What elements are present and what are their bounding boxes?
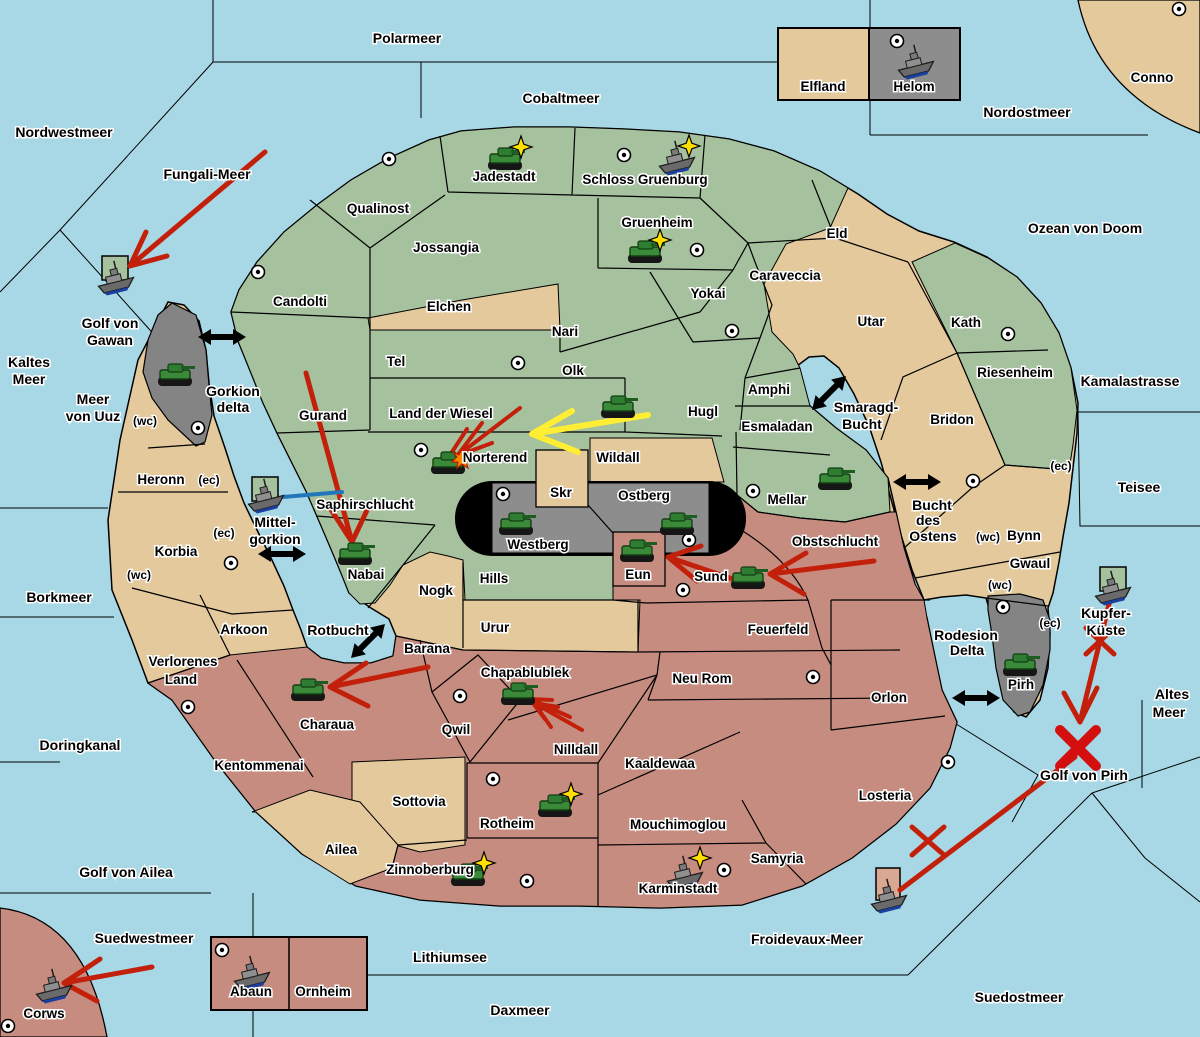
- label-nogk: Nogk: [419, 583, 453, 598]
- label-helom: Helom: [893, 79, 934, 94]
- label-bridon: Bridon: [930, 412, 974, 427]
- sea-label-rodesion-delta-2: Delta: [950, 642, 984, 658]
- sea-label-meer-von-uuz-1: Meer: [77, 391, 110, 407]
- sea-label-daxmeer: Daxmeer: [490, 1002, 550, 1018]
- sea-label-gorkion-delta-2: delta: [217, 399, 250, 415]
- label-conno: Conno: [1131, 70, 1174, 85]
- label-eld: Eld: [826, 226, 847, 241]
- label-nabai: Nabai: [348, 567, 385, 582]
- sea-label-rodesion-delta-1: Rodesion: [934, 627, 998, 643]
- sea-label-altes-meer-2: Meer: [1153, 704, 1186, 720]
- label-karminstadt: Karminstadt: [639, 881, 718, 896]
- box-abaun-ornheim[interactable]: [211, 937, 367, 1010]
- label-skr: Skr: [550, 485, 573, 500]
- label-kath: Kath: [951, 315, 981, 330]
- label-arkoon: Arkoon: [220, 622, 267, 637]
- label-charaua: Charaua: [300, 717, 355, 732]
- label-bynn: Bynn: [1007, 528, 1041, 543]
- strait-wc-korbia: (wc): [127, 568, 151, 582]
- strait-ec-heronn: (ec): [198, 473, 219, 487]
- sea-label-lithiumsee: Lithiumsee: [413, 949, 487, 965]
- sea-label-teisee: Teisee: [1118, 479, 1161, 495]
- label-esmaladan: Esmaladan: [741, 419, 812, 434]
- sea-label-mittel-gorkion-2: gorkion: [249, 531, 300, 547]
- label-elchen: Elchen: [427, 299, 471, 314]
- label-hills: Hills: [480, 571, 509, 586]
- sea-label-bucht-des-ostens-3: Ostens: [909, 528, 957, 544]
- label-gwaul: Gwaul: [1010, 556, 1051, 571]
- label-elfland: Elfland: [800, 79, 845, 94]
- sea-label-nordwestmeer: Nordwestmeer: [15, 124, 113, 140]
- label-feuerfeld: Feuerfeld: [748, 622, 809, 637]
- label-ornheim: Ornheim: [295, 984, 351, 999]
- sea-label-fungali-meer: Fungali-Meer: [163, 166, 251, 182]
- label-verlorenes: Verlorenes: [148, 654, 217, 669]
- sea-label-cobaltmeer: Cobaltmeer: [522, 90, 600, 106]
- label-eun: Eun: [625, 567, 651, 582]
- sea-label-kaltes-meer-1: Kaltes: [8, 354, 50, 370]
- label-orlon: Orlon: [871, 690, 907, 705]
- sea-label-kaltes-meer-2: Meer: [13, 371, 46, 387]
- label-pirh: Pirh: [1008, 677, 1034, 692]
- label-barana: Barana: [404, 641, 450, 656]
- sea-label-golf-von-gawan-2: Gawan: [87, 332, 133, 348]
- sea-label-smaragd-bucht-1: Smaragd-: [834, 399, 899, 415]
- label-caraveccia: Caraveccia: [749, 268, 821, 283]
- sea-label-bucht-des-ostens-2: des: [916, 512, 940, 528]
- label-verlorenes-land-2: Land: [165, 672, 197, 687]
- label-samyria: Samyria: [751, 851, 804, 866]
- label-utar: Utar: [857, 314, 885, 329]
- label-westberg: Westberg: [507, 537, 568, 552]
- label-yokai: Yokai: [690, 286, 725, 301]
- sea-label-mittel-gorkion-1: Mittel-: [254, 514, 296, 530]
- strait-ec-gwaul: (ec): [1039, 616, 1060, 630]
- strait-wc-bynn: (wc): [976, 530, 1000, 544]
- label-heronn: Heronn: [137, 472, 184, 487]
- label-corws: Corws: [23, 1006, 64, 1021]
- sea-label-kupfer-kueste-1: Kupfer-: [1081, 605, 1131, 621]
- sea-label-polarmeer: Polarmeer: [373, 30, 442, 46]
- label-abaun: Abaun: [230, 984, 272, 999]
- game-map: Polarmeer Nordwestmeer Fungali-Meer Coba…: [0, 0, 1200, 1037]
- label-qwil: Qwil: [442, 722, 471, 737]
- label-mellar: Mellar: [767, 492, 807, 507]
- label-hugl: Hugl: [688, 404, 718, 419]
- strait-ec-korbia: (ec): [213, 526, 234, 540]
- label-zinnoberburg: Zinnoberburg: [386, 862, 474, 877]
- sea-label-suedostmeer: Suedostmeer: [975, 989, 1064, 1005]
- strait-ec-bynn: (ec): [1050, 459, 1071, 473]
- label-nilldall: Nilldall: [554, 742, 598, 757]
- label-saphirschlucht: Saphirschlucht: [316, 497, 414, 512]
- label-ailea: Ailea: [325, 842, 358, 857]
- label-norterend: Norterend: [463, 450, 528, 465]
- sea-label-golf-von-gawan-1: Golf von: [82, 315, 139, 331]
- label-qualinost: Qualinost: [347, 201, 410, 216]
- sea-label-kupfer-kueste-2: Küste: [1087, 622, 1126, 638]
- label-sottovia: Sottovia: [392, 794, 446, 809]
- label-candolti: Candolti: [273, 294, 327, 309]
- label-rotheim: Rotheim: [480, 816, 534, 831]
- label-gurand: Gurand: [299, 408, 347, 423]
- label-amphi: Amphi: [748, 382, 790, 397]
- label-gruenheim: Gruenheim: [621, 215, 692, 230]
- label-korbia: Korbia: [155, 544, 198, 559]
- label-mouchimoglou: Mouchimoglou: [630, 817, 726, 832]
- label-olk: Olk: [562, 363, 584, 378]
- sea-label-rotbucht: Rotbucht: [307, 622, 369, 638]
- label-jossangia: Jossangia: [413, 240, 480, 255]
- label-riesenheim: Riesenheim: [977, 365, 1053, 380]
- label-obstschlucht: Obstschlucht: [792, 534, 879, 549]
- label-chapablublek: Chapablublek: [481, 665, 570, 680]
- label-schloss-gruenburg: Schloss Gruenburg: [582, 172, 707, 187]
- sea-label-gorkion-delta-1: Gorkion: [206, 383, 260, 399]
- sea-label-altes-meer-1: Altes: [1155, 686, 1189, 702]
- sea-label-golf-von-ailea: Golf von Ailea: [79, 864, 173, 880]
- label-neu-rom: Neu Rom: [672, 671, 731, 686]
- label-jadestadt: Jadestadt: [472, 169, 536, 184]
- sea-label-suedwestmeer: Suedwestmeer: [95, 930, 194, 946]
- strait-wc-gawar: (wc): [133, 414, 157, 428]
- sea-label-golf-von-pirh: Golf von Pirh: [1040, 767, 1128, 783]
- sea-label-ozean-von-doom: Ozean von Doom: [1028, 220, 1142, 236]
- sea-label-nordostmeer: Nordostmeer: [983, 104, 1071, 120]
- sea-label-kamalastrasse: Kamalastrasse: [1081, 373, 1180, 389]
- strait-wc-gwaul: (wc): [988, 578, 1012, 592]
- sea-label-doringkanal: Doringkanal: [40, 737, 121, 753]
- label-tel: Tel: [387, 354, 406, 369]
- label-sund: Sund: [694, 569, 728, 584]
- label-kentommenai: Kentommenai: [214, 758, 303, 773]
- label-urur: Urur: [481, 620, 510, 635]
- label-land-der-wiesel: Land der Wiesel: [389, 406, 492, 421]
- sea-label-bucht-des-ostens-1: Bucht: [912, 497, 952, 513]
- sea-label-froidevaux-meer: Froidevaux-Meer: [751, 931, 864, 947]
- sea-label-smaragd-bucht-2: Bucht: [842, 416, 882, 432]
- label-nari: Nari: [552, 324, 578, 339]
- label-ostberg: Ostberg: [618, 488, 670, 503]
- sea-label-meer-von-uuz-2: von Uuz: [66, 408, 120, 424]
- label-wildall: Wildall: [596, 450, 639, 465]
- sea-label-borkmeer: Borkmeer: [26, 589, 92, 605]
- label-losteria: Losteria: [859, 788, 912, 803]
- label-kaaldewaa: Kaaldewaa: [625, 756, 695, 771]
